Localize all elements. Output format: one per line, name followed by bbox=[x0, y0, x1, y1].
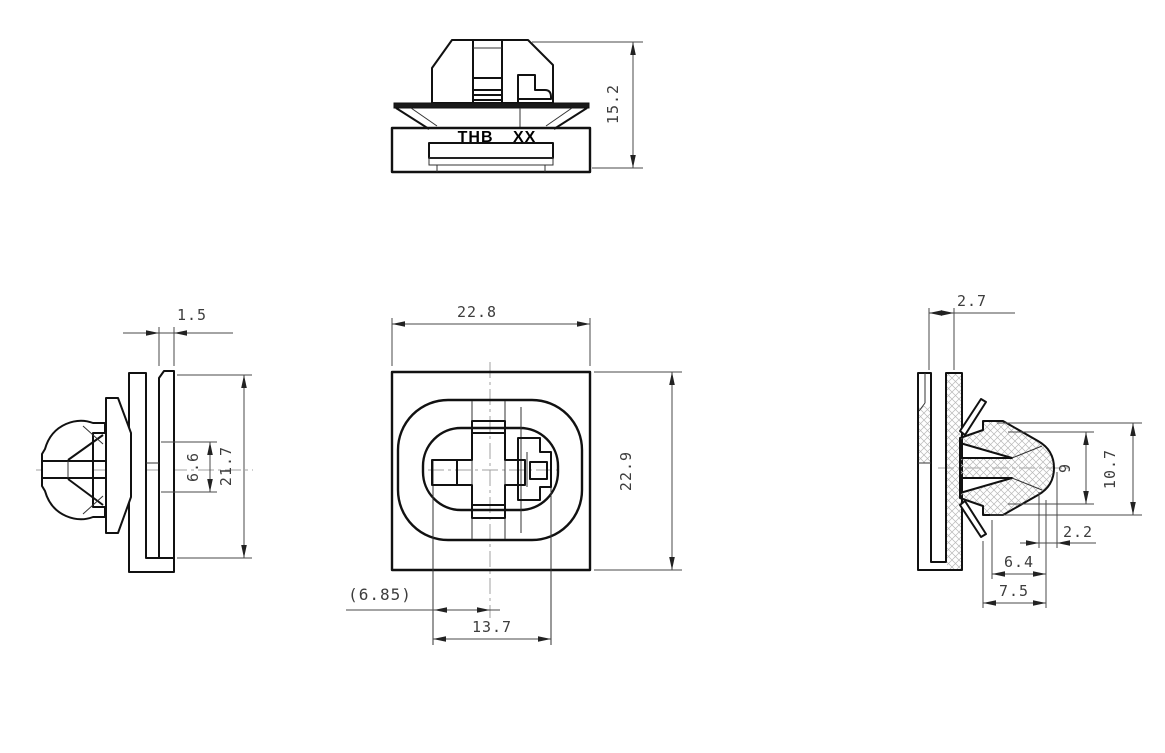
dim-face-ref-offset-label: (6.85) bbox=[348, 585, 412, 604]
dim-front-height-label: 15.2 bbox=[604, 84, 622, 124]
dim-face-height-label: 22.9 bbox=[617, 451, 635, 491]
dim-left-overall-height-label: 21.7 bbox=[217, 446, 235, 486]
left-cone bbox=[106, 398, 131, 533]
section-plate-hatch bbox=[947, 374, 961, 569]
dim-section-panel: 2.7 bbox=[929, 292, 1015, 370]
dim-face-height: 22.9 bbox=[594, 372, 682, 570]
dim-section-head-inner-label: 9 bbox=[1056, 463, 1074, 473]
dim-left-gap-label: 1.5 bbox=[177, 306, 207, 324]
dim-face-slot-length-label: 13.7 bbox=[472, 618, 512, 636]
right-section-view: 2.7 9 10.7 2.2 bbox=[918, 292, 1142, 608]
part-marking: THB XX bbox=[458, 129, 537, 146]
dim-face-slot-length: 13.7 bbox=[433, 618, 551, 642]
dim-section-panel-label: 2.7 bbox=[957, 292, 987, 310]
section-leftplate-hatch bbox=[919, 406, 930, 463]
front-view: THB XX 15.2 bbox=[392, 40, 643, 172]
dim-left-inner-height-label: 6.6 bbox=[184, 452, 202, 482]
dim-section-tip-label: 2.2 bbox=[1063, 523, 1093, 541]
front-lock-detail bbox=[518, 75, 551, 103]
section-clip-head bbox=[960, 421, 1054, 515]
left-side-view: 1.5 6.6 21.7 bbox=[36, 306, 253, 572]
left-channel-outline bbox=[129, 371, 174, 572]
front-flange bbox=[394, 103, 589, 108]
face-view: 22.8 22.9 (6.85) 13.7 bbox=[346, 303, 682, 645]
dim-section-head-overall-label: 10.7 bbox=[1101, 449, 1119, 489]
drawing-canvas: THB XX 15.2 bbox=[0, 0, 1165, 753]
dim-section-mid-label: 6.4 bbox=[1004, 553, 1034, 571]
drawing-sheet: THB XX 15.2 bbox=[0, 0, 1165, 753]
front-head-outline bbox=[432, 40, 553, 103]
dim-face-width-label: 22.8 bbox=[457, 303, 497, 321]
dim-left-gap: 1.5 bbox=[123, 306, 233, 366]
dim-face-ref-offset: (6.85) bbox=[346, 585, 500, 613]
dim-section-overall-label: 7.5 bbox=[999, 582, 1029, 600]
dim-face-width: 22.8 bbox=[392, 303, 590, 366]
